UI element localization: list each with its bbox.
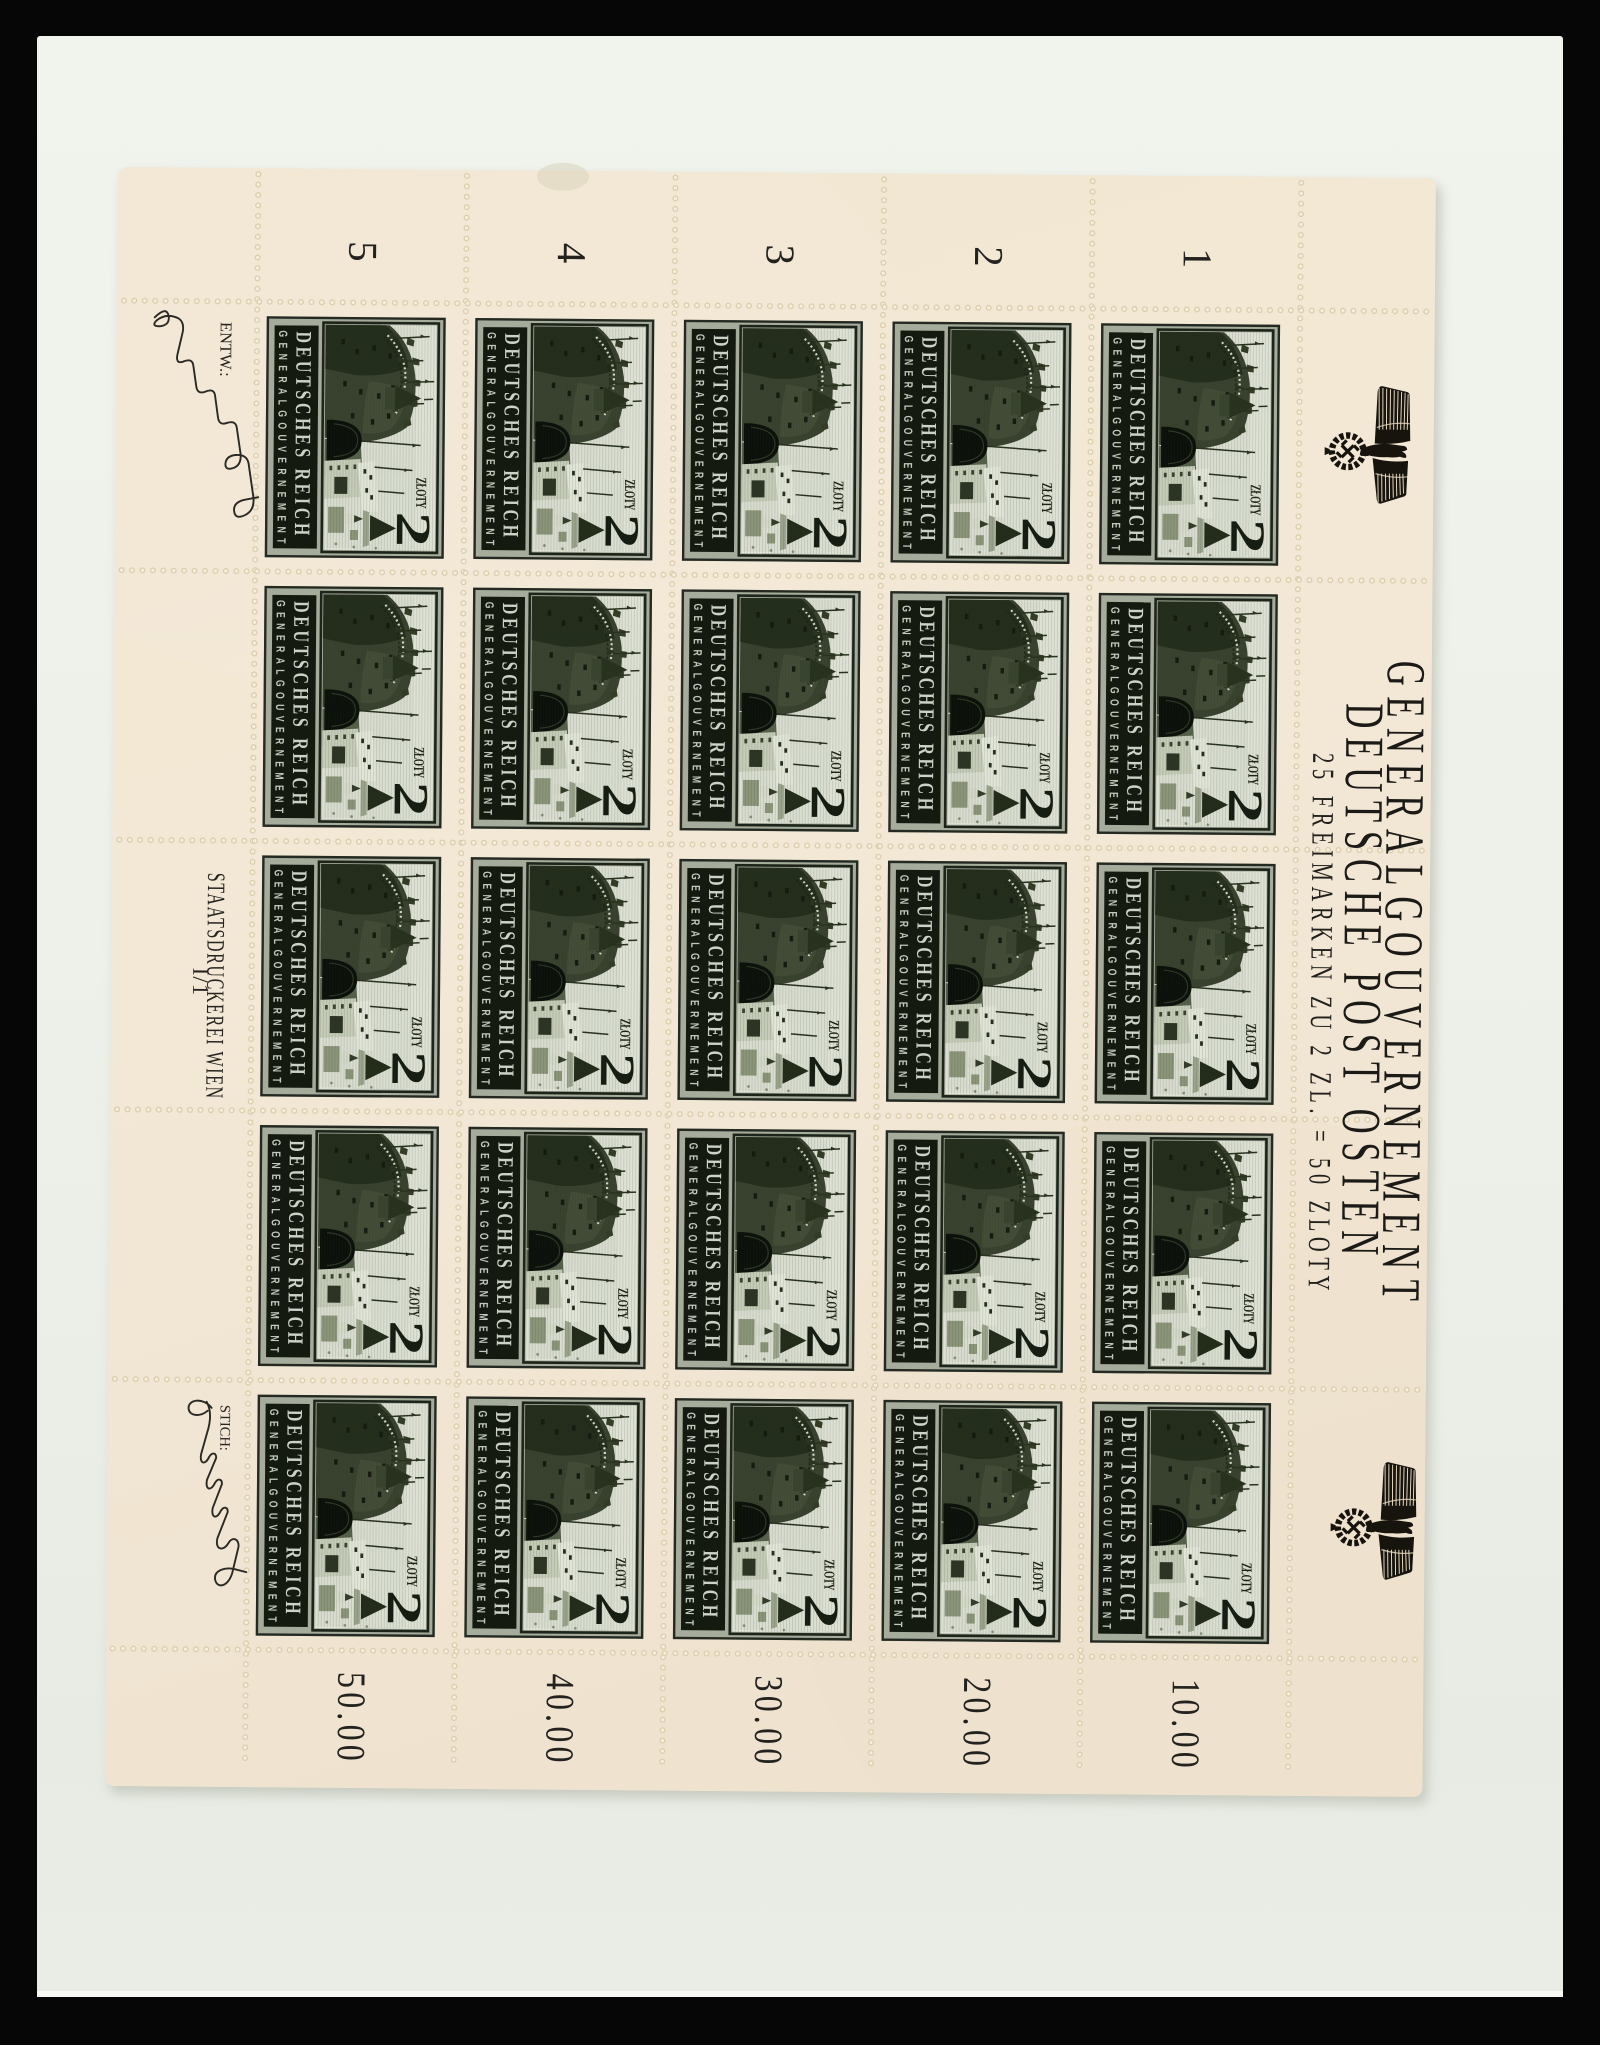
svg-text:2: 2 (966, 246, 1012, 267)
svg-text:STICH:: STICH: (216, 1405, 232, 1451)
svg-text:ENTW.:: ENTW.: (216, 322, 235, 377)
svg-text:20.00: 20.00 (955, 1677, 1000, 1766)
svg-text:10.00: 10.00 (1163, 1679, 1208, 1768)
svg-text:40.00: 40.00 (537, 1674, 582, 1763)
svg-text:50.00: 50.00 (329, 1672, 374, 1761)
svg-text:30.00: 30.00 (746, 1675, 791, 1764)
svg-text:1: 1 (1175, 248, 1221, 269)
svg-text:25 FREIMARKEN ZU 2 ZL. = 50 ZL: 25 FREIMARKEN ZU 2 ZL. = 50 ZLOTY (1302, 753, 1341, 1291)
svg-text:5: 5 (340, 241, 386, 262)
svg-text:4: 4 (549, 243, 595, 264)
svg-text:3: 3 (757, 244, 803, 265)
svg-text:I/1: I/1 (188, 968, 213, 997)
